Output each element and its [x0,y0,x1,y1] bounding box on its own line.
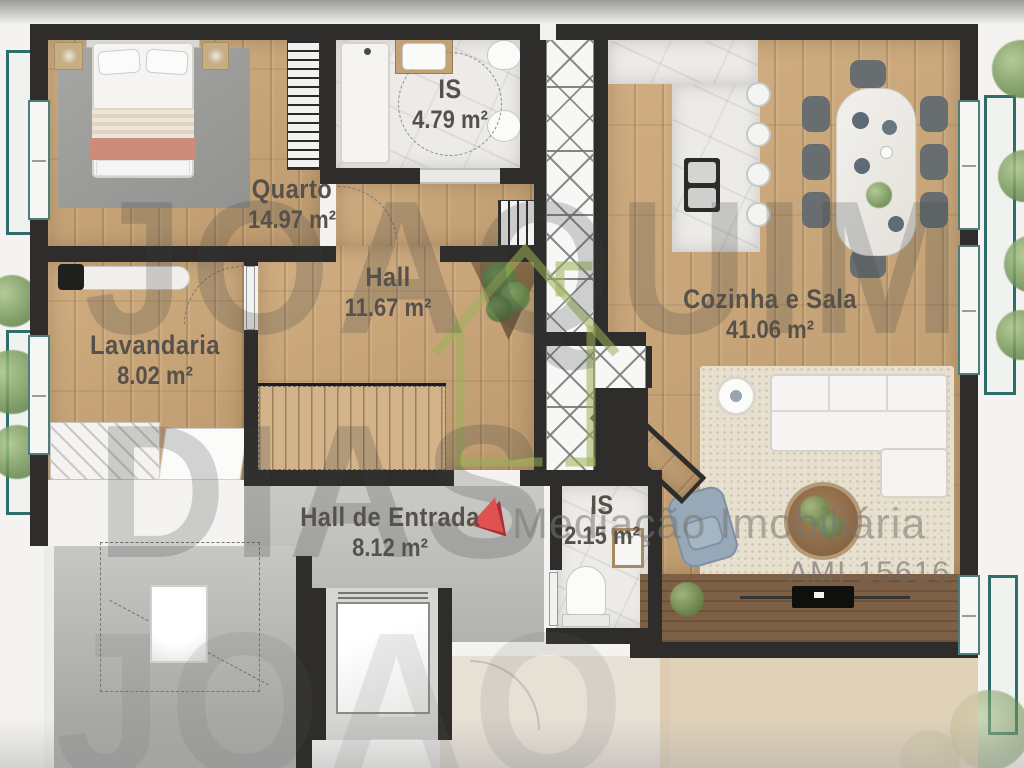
dining-chair [850,60,886,88]
window [28,335,50,455]
wall-is2-top [546,470,662,486]
bar-stool [746,202,771,227]
wall-bed-bottom [30,246,336,262]
wall-shaft-lower-block [594,388,648,474]
wall-stair-right [296,556,312,768]
wall-is2-left [550,486,562,570]
washer-unit [50,422,160,480]
wall-laundry-right-b [244,330,258,470]
dining-chair [920,96,948,132]
window-mullion [32,160,46,162]
plate [854,158,870,174]
side-table-center [730,390,742,402]
floor-plan-image: JOAQUIM DIAS JOAQ Mediação Imobiliária A… [0,0,1024,768]
elevator-shaft [546,40,594,470]
window [958,575,980,655]
door-leaf [549,572,558,626]
duct-shaft [594,346,646,388]
wall-hall-stub [440,246,546,262]
wardrobe [287,40,320,170]
sink-steel [688,162,716,183]
wall-bottom-right [630,642,978,658]
window [958,100,980,230]
bed-sheet-fold [96,160,190,176]
window-mullion [962,615,976,617]
sofa-cushion-line [828,376,830,412]
lamp-icon [61,48,77,64]
wall-top-vent [540,24,556,40]
table-plant-icon [866,182,892,208]
elevator-doors [338,592,428,599]
wall-top [30,24,978,40]
stair-skylight [150,585,208,663]
wall-duct-edge [646,346,652,388]
sofa-seat-line [772,410,946,412]
bed-blanket [90,138,196,160]
tv-light [814,592,824,598]
window-mullion [962,310,976,312]
window [958,245,980,375]
plate [852,112,869,129]
bed-pillow [97,49,141,76]
window-mullion [962,165,976,167]
wall-bed-bath [320,24,336,184]
sofa [770,374,948,452]
plate [888,216,904,232]
iron-icon [58,264,84,290]
shower-drain [364,48,371,55]
wall-bath-right [520,24,534,184]
page-shade-bottom [0,718,1024,768]
shower [340,42,390,164]
teapot [880,146,893,159]
tree-icon [992,40,1024,98]
ironing-board [72,266,190,290]
bar-stool [746,82,771,107]
page-shade-top [0,0,1024,24]
lamp-icon [208,48,224,64]
wall-hall-bottom-a [244,470,454,486]
bed-pillow [145,49,189,76]
dining-chair [920,144,948,180]
hob-steel [688,188,716,208]
dining-table [836,88,916,256]
kitchen-counter-top [608,40,758,84]
sofa-chaise [880,448,948,498]
wall-frame [612,528,644,568]
wall-shaft-right [594,24,608,334]
plant-icon [486,296,512,322]
stair-railing [258,383,446,386]
window-mullion [32,395,46,397]
wall-under-shaft [546,332,646,346]
wall-is2-bottom [546,628,662,644]
toilet2-tank [562,614,610,627]
dining-chair [920,192,948,228]
dining-chair [802,192,830,228]
wall-hall-bottom-b [520,470,546,486]
elevator-wall-left [312,588,326,740]
sofa-cushion-line [886,376,888,412]
toilet2-bowl [566,566,606,616]
bar-stool [746,122,771,147]
bar-stool [746,162,771,187]
dining-chair [802,144,830,180]
floor-plant-icon [670,582,704,616]
elevator-wall-right [438,588,452,740]
door-leaf [246,266,255,330]
sink-basin [402,43,446,70]
wall-laundry-right-a [244,246,258,266]
bed-blanket-stripe [92,108,194,138]
plate [882,120,897,135]
window [28,100,50,220]
toilet [487,40,521,70]
internal-stairs [258,386,446,470]
dining-chair [802,96,830,132]
bath-door-threshold [420,168,500,184]
counter-board [158,428,247,480]
coffee-table-plant-icon [818,514,842,538]
elevator-cab [336,602,430,714]
